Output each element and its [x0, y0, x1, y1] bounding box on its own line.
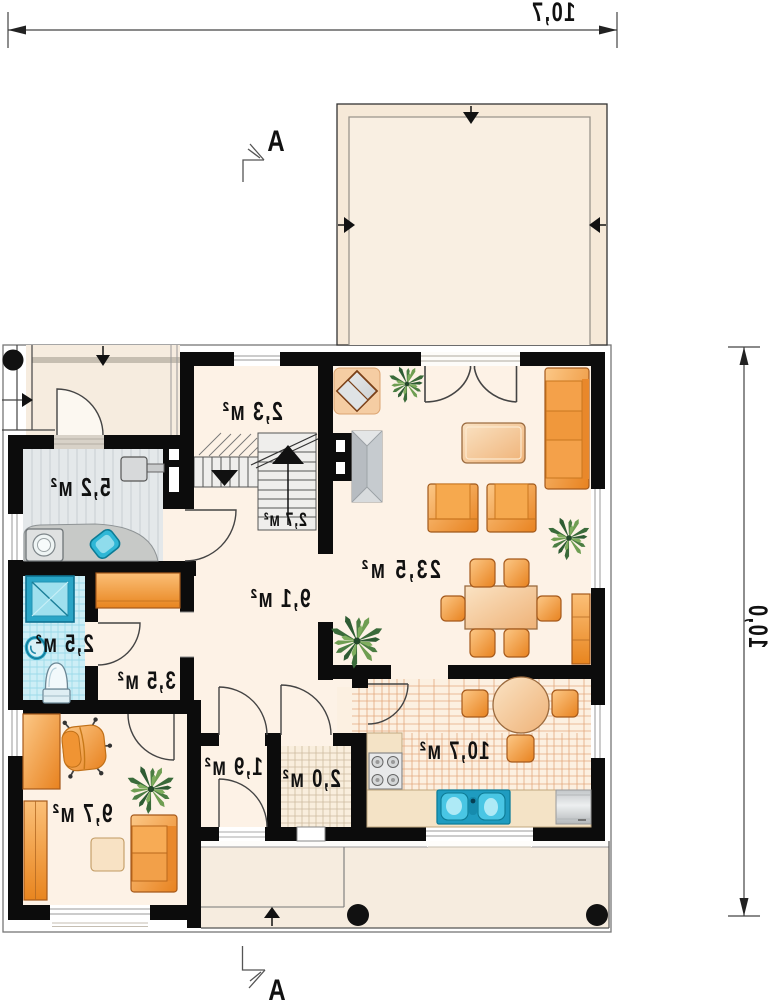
svg-text:23,5 м²: 23,5 м²	[359, 554, 441, 584]
svg-text:2,7 м²: 2,7 м²	[263, 509, 307, 531]
svg-text:9,7 м²: 9,7 м²	[51, 798, 113, 828]
svg-text:1,9 м²: 1,9 м²	[203, 752, 263, 780]
svg-text:10,7: 10,7	[531, 0, 576, 28]
svg-text:2,3 м²: 2,3 м²	[221, 396, 283, 426]
svg-text:A: A	[268, 972, 285, 1000]
svg-text:2,5 м²: 2,5 м²	[34, 629, 94, 657]
svg-text:2,0 м²: 2,0 м²	[281, 764, 341, 792]
svg-text:9,1 м²: 9,1 м²	[249, 583, 311, 613]
svg-text:5,2 м²: 5,2 м²	[49, 472, 111, 502]
svg-text:10,7 м²: 10,7 м²	[418, 736, 489, 764]
svg-text:A: A	[267, 123, 284, 157]
svg-text:10,0: 10,0	[742, 604, 772, 649]
svg-text:3,5 м²: 3,5 м²	[116, 666, 176, 694]
